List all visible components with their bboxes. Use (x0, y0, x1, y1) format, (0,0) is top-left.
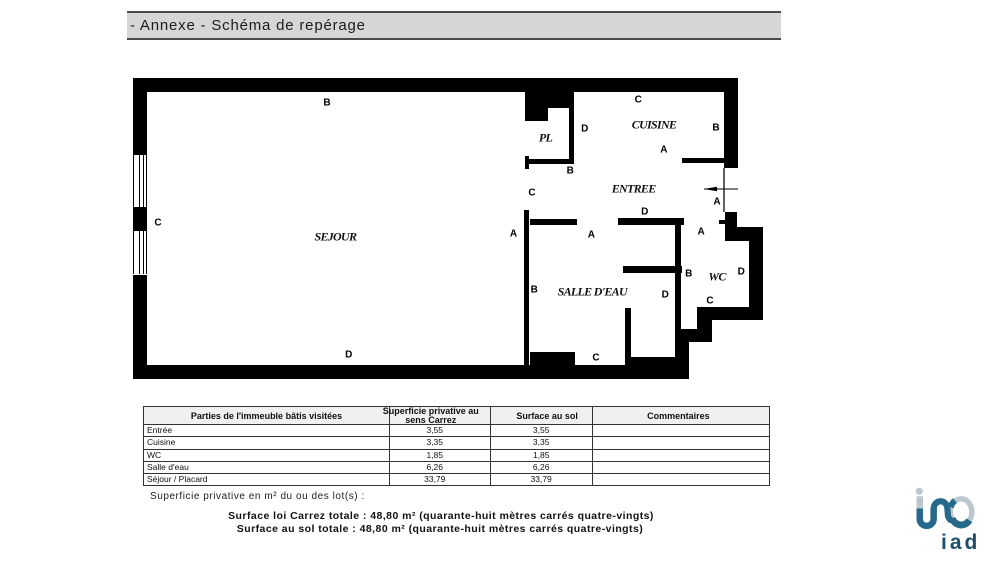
svg-text:iad: iad (941, 531, 980, 554)
